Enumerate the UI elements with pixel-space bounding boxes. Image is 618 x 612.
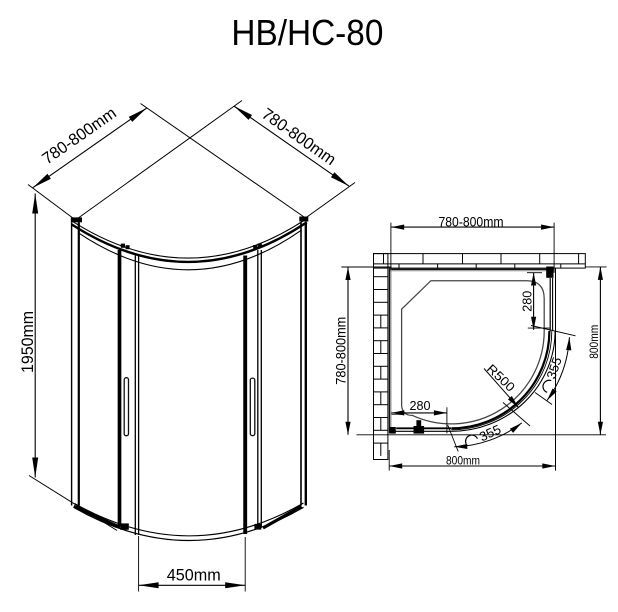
svg-text:HB/HC-80: HB/HC-80 bbox=[231, 12, 383, 53]
svg-text:1950mm: 1950mm bbox=[19, 311, 37, 373]
svg-text:780-800mm: 780-800mm bbox=[439, 213, 504, 229]
svg-text:800mm: 800mm bbox=[587, 325, 601, 359]
svg-text:800mm: 800mm bbox=[446, 453, 480, 467]
svg-text:280: 280 bbox=[520, 291, 535, 312]
svg-text:780-800mm: 780-800mm bbox=[333, 317, 349, 385]
svg-text:780-800mm: 780-800mm bbox=[39, 104, 120, 168]
svg-text:450mm: 450mm bbox=[167, 566, 221, 584]
svg-text:355: 355 bbox=[543, 355, 564, 381]
svg-text:780-800mm: 780-800mm bbox=[258, 105, 339, 169]
svg-text:R500: R500 bbox=[484, 362, 518, 395]
svg-text:280: 280 bbox=[410, 398, 431, 413]
